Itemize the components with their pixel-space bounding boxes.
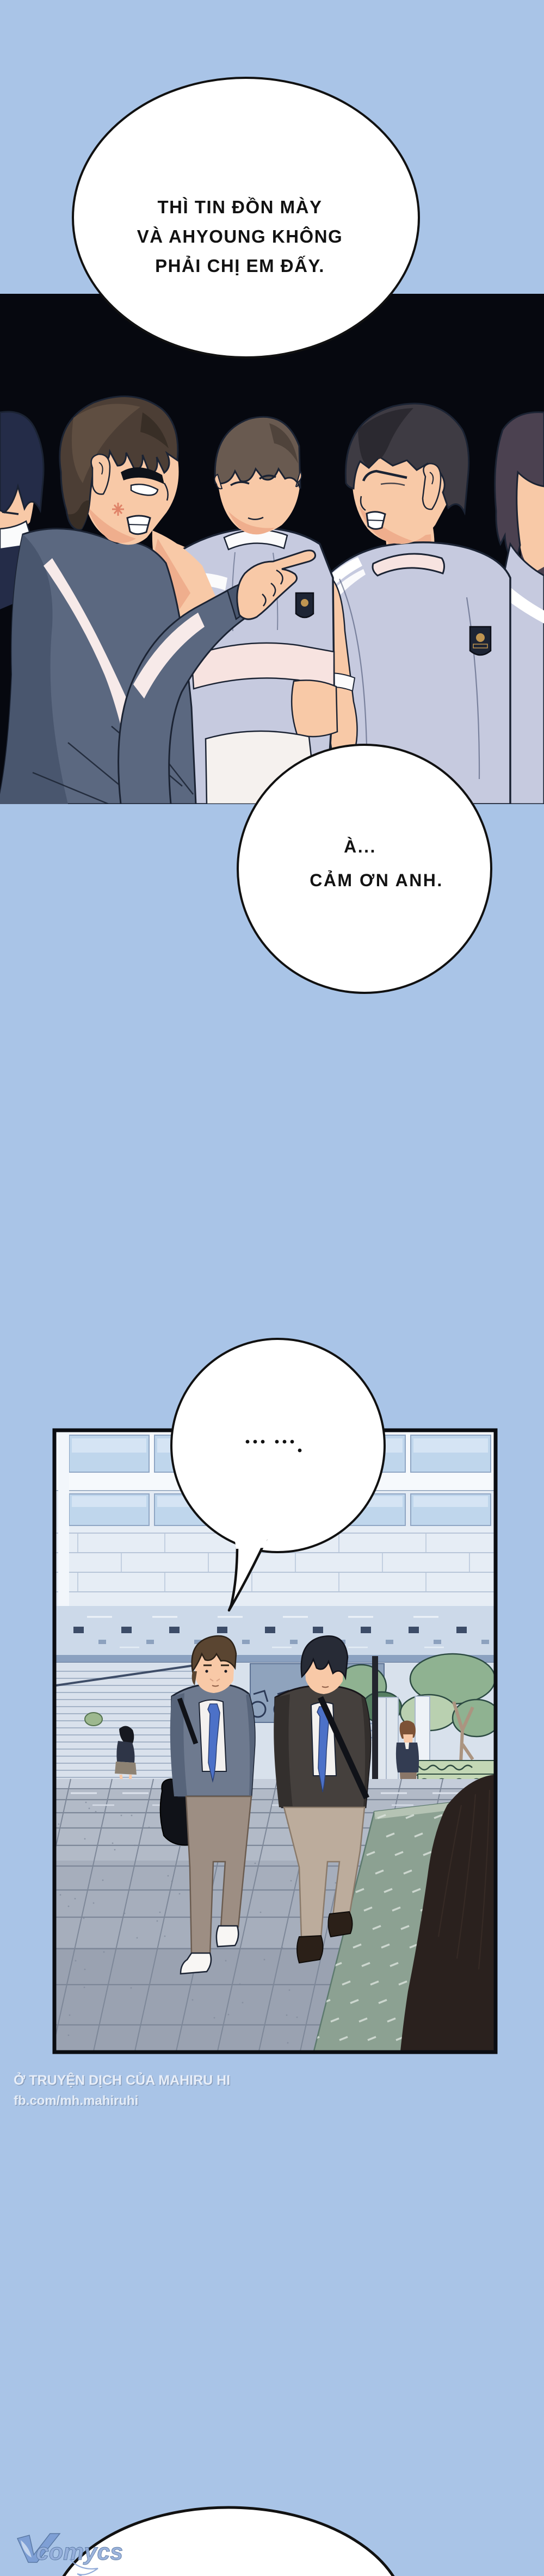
svg-text:fb.com/mh.mahiruhi: fb.com/mh.mahiruhi [14, 2093, 138, 2108]
svg-text:À...: À... [344, 837, 376, 856]
svg-text:comycs: comycs [36, 2539, 123, 2565]
svg-text:THÌ TIN ĐỒN MÀY: THÌ TIN ĐỒN MÀY [158, 197, 323, 217]
svg-text:Ở TRUYỆN DỊCH CỦA MAHIRU HI: Ở TRUYỆN DỊCH CỦA MAHIRU HI [14, 2072, 230, 2088]
svg-text:VÀ AHYOUNG KHÔNG: VÀ AHYOUNG KHÔNG [137, 226, 343, 246]
svg-text:PHẢI CHỊ EM ĐẤY.: PHẢI CHỊ EM ĐẤY. [155, 256, 325, 276]
svg-text:CẢM ƠN ANH.: CẢM ƠN ANH. [310, 870, 443, 890]
